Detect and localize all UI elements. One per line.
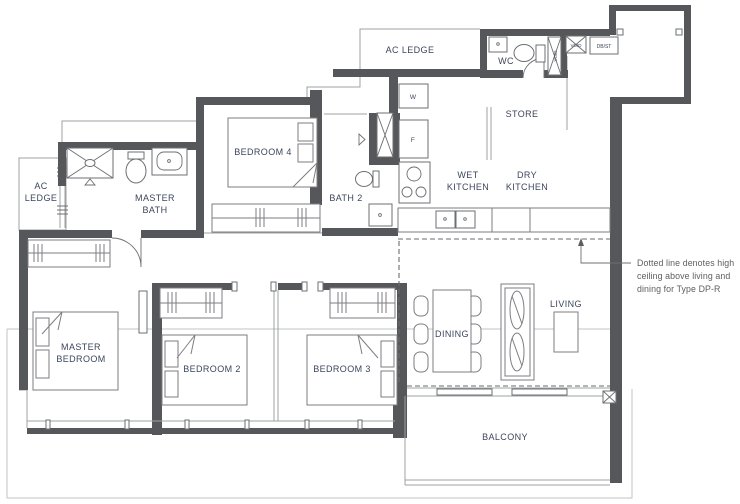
void-shaft-3 [377, 113, 393, 157]
wc-top-wall [480, 29, 610, 36]
pillow [298, 123, 313, 141]
top-left-step-outline [62, 105, 197, 142]
dining-chair [414, 296, 428, 316]
lobby-bottom-wall [615, 97, 691, 104]
pillow [381, 341, 394, 367]
lobby-jamb [617, 29, 623, 35]
mullion [305, 420, 309, 429]
wardrobe-bed2 [160, 288, 222, 318]
left-step-line [19, 390, 27, 428]
pillow [165, 341, 178, 367]
label-bedroom2: BEDROOM 2 [183, 364, 241, 374]
coffee-table [554, 312, 578, 352]
bath2-toilet-bowl [356, 172, 373, 187]
ac-ledge-bottom-wall [333, 69, 480, 77]
counter-outline [398, 208, 610, 232]
label-balcony: BALCONY [482, 432, 528, 442]
pillow [381, 371, 394, 397]
bedroom3-door-jamb [302, 282, 307, 291]
master-bath-toilet [126, 152, 146, 183]
label-bath2: BATH 2 [329, 193, 362, 203]
bath2-door-marker [359, 134, 365, 145]
wardrobe-master [28, 240, 110, 267]
label-master-bedroom-2: BEDROOM [56, 354, 105, 364]
shower-drain [85, 160, 95, 167]
pillow [165, 371, 178, 397]
toilet-bowl [126, 159, 146, 183]
wc-sink [489, 37, 507, 52]
annotation-line-2: ceiling above living and [637, 271, 730, 281]
bedroom3-door-jamb [318, 282, 323, 291]
mullion [46, 420, 50, 429]
bedroom-window-sill [27, 428, 395, 434]
label-master-bedroom-1: MASTER [61, 342, 101, 352]
label-wet-kitchen-2: KITCHEN [447, 182, 489, 192]
label-void-shaft: VOID [553, 50, 558, 62]
wc-bottom-wall [480, 70, 523, 78]
stove [399, 162, 430, 203]
label-bedroom4: BEDROOM 4 [234, 147, 292, 157]
window-band [27, 420, 395, 429]
label-master-bath-2: BATH [143, 205, 168, 215]
label-ac-ledge-left-2: LEDGE [25, 193, 58, 203]
shower-head-marker [85, 179, 95, 185]
lobby-right-wall [684, 5, 691, 104]
bedroom3-top-wall-left [278, 283, 304, 290]
master-bedroom-door-leaf [139, 291, 147, 333]
floor-plan-drawing: AC LEDGE WC STORE WET KITCHEN DRY KITCHE… [0, 0, 740, 504]
kitchen-counter [398, 208, 610, 232]
wardrobe-bed3 [330, 288, 395, 318]
sliding-door-panel [437, 389, 492, 395]
label-living: LIVING [550, 299, 582, 309]
bath2-bottom-wall [322, 228, 398, 236]
pillow [36, 350, 49, 378]
lobby-top-wall [609, 5, 691, 11]
stove-counter [399, 162, 430, 203]
bed2-bed3-partition [274, 290, 278, 421]
label-washer: W [410, 94, 417, 101]
dining-chair [414, 352, 428, 372]
bedroom2-door-jamb [271, 282, 276, 291]
balcony-drain-marker [603, 391, 616, 403]
kitchen-sink [436, 211, 455, 228]
toilet-tank [128, 152, 144, 159]
sofa [501, 284, 534, 380]
label-ac-ledge-top: AC LEDGE [386, 45, 435, 55]
label-store: STORE [506, 109, 539, 119]
left-main-wall [19, 237, 28, 390]
dining-chair [414, 324, 428, 344]
right-main-wall [610, 97, 622, 483]
master-bath-sink [152, 148, 187, 175]
annotation: Dotted line denotes high ceiling above l… [578, 238, 734, 294]
bath2-sink [369, 204, 392, 226]
label-void-box: VOID [570, 43, 582, 48]
bath2-toilet-tank [373, 171, 379, 187]
sliding-door-panel [512, 389, 567, 395]
label-ac-ledge-left-1: AC [34, 181, 47, 191]
label-dry-kitchen-1: DRY [517, 170, 537, 180]
label-wet-kitchen-1: WET [457, 170, 478, 180]
store-left-partition [487, 107, 491, 160]
annotation-line-3: dining for Type DP-R [637, 284, 721, 294]
floor-plan: AC LEDGE WC STORE WET KITCHEN DRY KITCHE… [0, 0, 740, 504]
wardrobe-bed4 [212, 204, 320, 232]
annotation-line-1: Dotted line denotes high [637, 258, 734, 268]
master-bath-door [112, 238, 141, 267]
wc-toilet-tank [536, 45, 545, 62]
lobby-jamb [676, 29, 682, 35]
kitchen-sink [456, 211, 475, 228]
bedroom2-door-jamb [232, 282, 237, 291]
shower [67, 148, 113, 185]
counter-dividers [492, 208, 530, 232]
label-wc: WC [498, 56, 514, 66]
walls [19, 5, 691, 483]
master-bath-bottom-wall-left [19, 230, 112, 238]
label-dry-kitchen-2: KITCHEN [506, 182, 548, 192]
wc-toilet-bowl [514, 45, 534, 62]
pillow [298, 144, 313, 162]
label-bedroom3: BEDROOM 3 [313, 364, 371, 374]
mullion [245, 420, 249, 429]
annotation-leader-line [581, 245, 631, 263]
label-dining: DINING [435, 329, 469, 339]
bedroom4-top-wall [196, 97, 310, 105]
label-db-st: DB/ST [597, 44, 612, 50]
shower-left-wall [58, 142, 66, 186]
void3-left-wall [369, 113, 377, 162]
label-fridge: F [411, 137, 415, 144]
master-bath-bottom-wall-right [141, 230, 203, 238]
mullion [358, 420, 362, 429]
mullion [125, 420, 129, 429]
lobby-left-stub [609, 5, 616, 35]
pillow [36, 318, 49, 346]
label-master-bath-1: MASTER [135, 193, 175, 203]
wf-column-wall [389, 77, 398, 115]
void3-bottom-wall [369, 157, 400, 165]
mullion [185, 420, 189, 429]
sofa-outline [501, 284, 534, 380]
bedroom4-left-wall [196, 97, 204, 238]
